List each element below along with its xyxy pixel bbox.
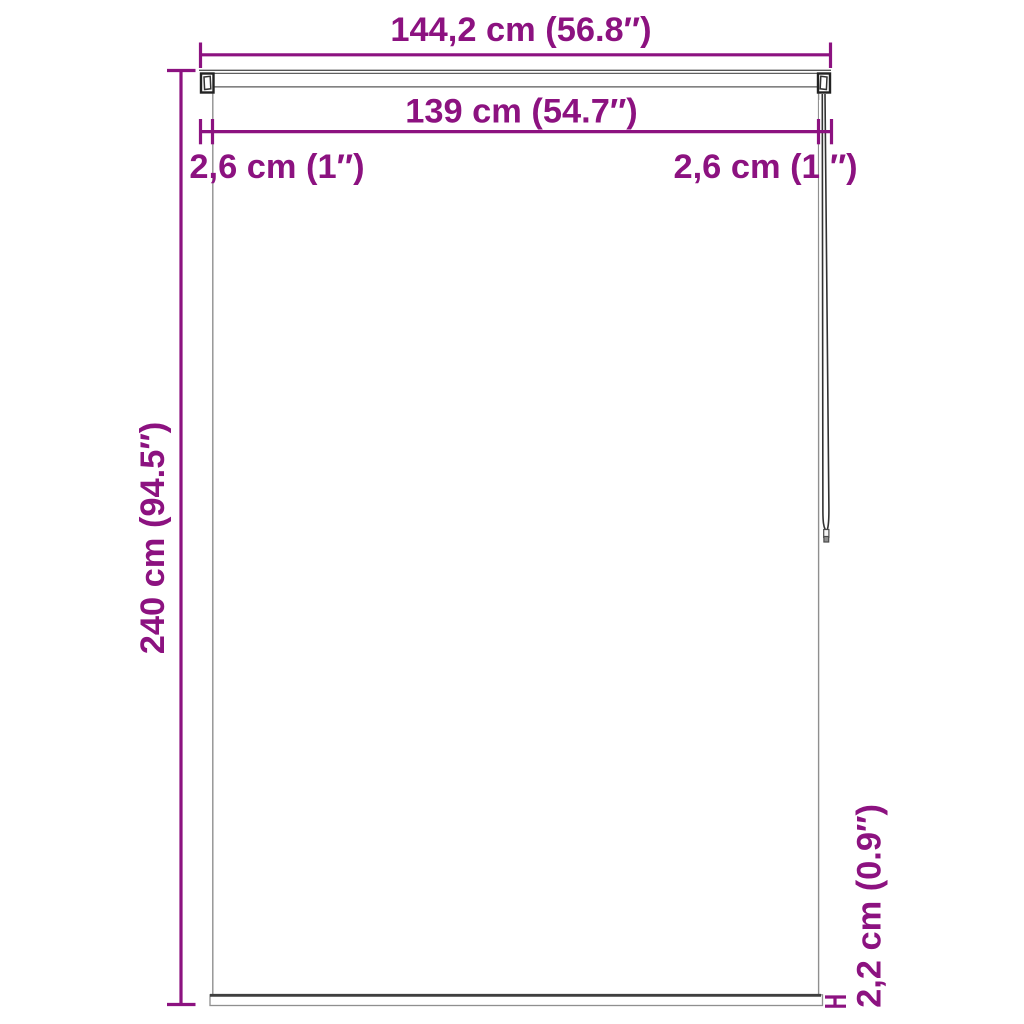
svg-text:2,6 cm (1: 2,6 cm (1 (673, 148, 820, 186)
svg-text:139 cm (54.7″): 139 cm (54.7″) (405, 93, 638, 131)
svg-text:2,6 cm (1″): 2,6 cm (1″) (189, 148, 364, 186)
svg-text:2,2 cm (0.9″): 2,2 cm (0.9″) (851, 804, 889, 1008)
svg-text:144,2 cm (56.8″): 144,2 cm (56.8″) (390, 11, 651, 49)
svg-text:″): ″) (830, 148, 858, 186)
svg-text:240 cm (94.5″): 240 cm (94.5″) (134, 422, 172, 655)
